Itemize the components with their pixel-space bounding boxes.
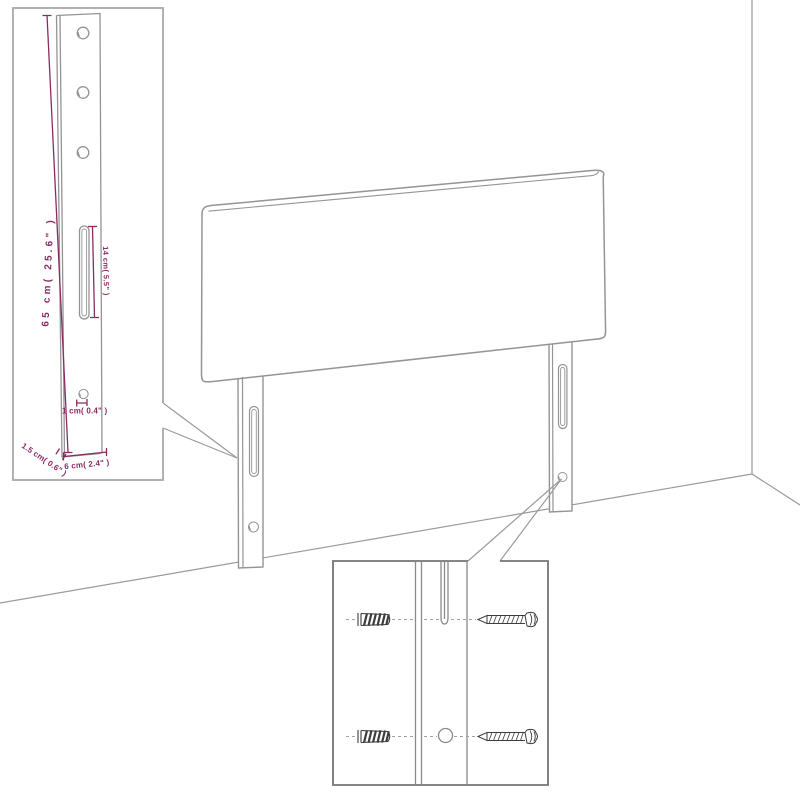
leg-slot-label: 14 cm( 5.5" ) [101, 246, 111, 296]
assembly-diagram-page: 65 cm( 25.6" ) 14 cm( 5.5" ) 1 cm( 0.4" … [0, 0, 800, 800]
headboard-leg-left [238, 372, 263, 568]
diagram-background [0, 0, 800, 800]
leg-left-side-edge [243, 377, 244, 568]
assembly-diagram: 65 cm( 25.6" ) 14 cm( 5.5" ) 1 cm( 0.4" … [0, 0, 800, 800]
leg-hole-label: 1 cm( 0.4" ) [62, 407, 107, 416]
